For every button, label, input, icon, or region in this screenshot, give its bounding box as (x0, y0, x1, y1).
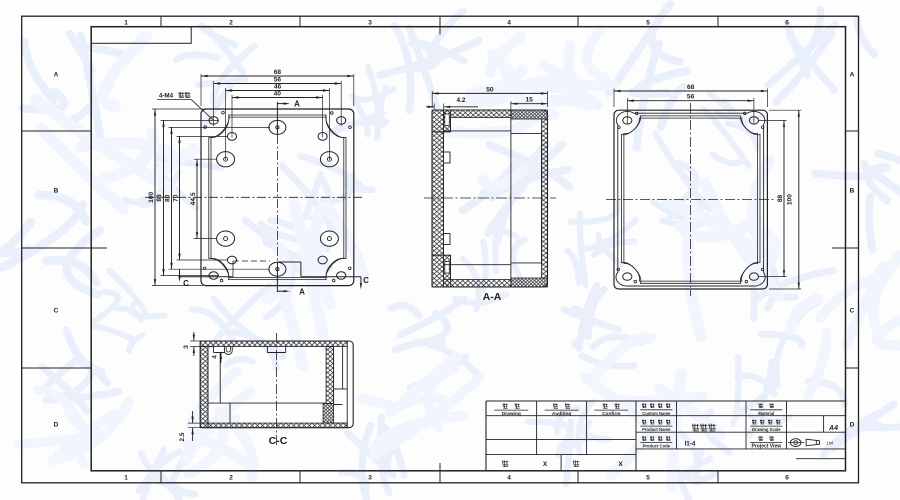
svg-text:Drawing Scale: Drawing Scale (752, 427, 781, 432)
svg-text:A4: A4 (828, 425, 838, 432)
svg-text:3: 3 (183, 345, 190, 349)
svg-text:2.5: 2.5 (179, 432, 186, 441)
svg-text:70: 70 (172, 194, 179, 202)
svg-text:68: 68 (687, 84, 695, 91)
svg-text:X: X (543, 461, 548, 468)
svg-text:68: 68 (274, 69, 282, 76)
svg-text:80: 80 (164, 194, 171, 202)
svg-text:Product Name: Product Name (642, 427, 671, 432)
svg-text:A: A (294, 100, 300, 109)
svg-text:6: 6 (785, 19, 789, 26)
svg-text:4: 4 (507, 19, 511, 26)
svg-text:88: 88 (777, 195, 784, 203)
svg-text:1ml: 1ml (827, 441, 834, 446)
svg-text:4.2: 4.2 (457, 97, 466, 104)
svg-text:88: 88 (156, 194, 163, 202)
svg-text:C: C (850, 308, 855, 315)
svg-text:2: 2 (229, 19, 233, 26)
svg-text:5: 5 (646, 475, 650, 482)
svg-text:1: 1 (124, 19, 128, 26)
svg-text:D: D (850, 422, 855, 429)
svg-text:56: 56 (687, 94, 695, 101)
svg-text:C: C (363, 276, 369, 285)
svg-text:C: C (54, 308, 59, 315)
svg-text:4: 4 (212, 355, 219, 359)
svg-text:B: B (54, 188, 59, 195)
svg-text:56: 56 (274, 77, 282, 84)
svg-text:Custom Name: Custom Name (642, 411, 671, 416)
svg-text:40: 40 (274, 91, 282, 98)
svg-text:4: 4 (507, 475, 511, 482)
svg-text:3: 3 (368, 19, 372, 26)
svg-text:Confirm: Confirm (602, 411, 620, 417)
svg-text:A: A (850, 72, 855, 79)
svg-text:44.5: 44.5 (190, 192, 197, 205)
svg-text:I1-4: I1-4 (685, 440, 696, 447)
svg-text:2: 2 (229, 475, 233, 482)
svg-text:Project View: Project View (751, 444, 781, 450)
svg-text:A-A: A-A (483, 291, 502, 303)
svg-text:Material: Material (758, 411, 774, 416)
svg-text:X: X (618, 461, 623, 468)
svg-text:100: 100 (148, 191, 155, 202)
svg-text:Drawing: Drawing (502, 411, 521, 417)
svg-text:C-C: C-C (269, 435, 288, 447)
svg-text:100: 100 (787, 194, 794, 205)
svg-text:1: 1 (124, 475, 128, 482)
svg-text:Auditing: Auditing (552, 411, 572, 417)
svg-text:50: 50 (486, 86, 494, 93)
svg-text:A: A (299, 288, 305, 297)
svg-text:Product Code: Product Code (643, 444, 671, 449)
svg-text:6: 6 (785, 475, 789, 482)
svg-text:B: B (850, 188, 855, 195)
svg-text:A: A (54, 72, 59, 79)
svg-text:C: C (183, 279, 189, 288)
svg-text:46: 46 (274, 84, 282, 91)
svg-text:5: 5 (646, 19, 650, 26)
svg-text:3: 3 (368, 475, 372, 482)
svg-text:4-M4: 4-M4 (159, 93, 174, 100)
svg-text:15: 15 (526, 97, 534, 104)
svg-text:D: D (54, 422, 59, 429)
